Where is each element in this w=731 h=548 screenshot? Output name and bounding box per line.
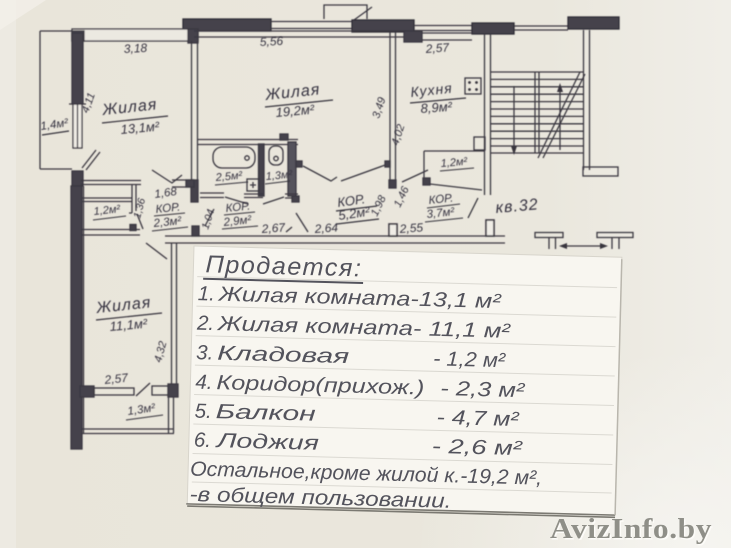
svg-text:4.: 4. <box>195 371 213 394</box>
svg-text:5.: 5. <box>194 400 212 423</box>
svg-text:2.: 2. <box>196 312 215 335</box>
svg-text:AvizInfo.by: AvizInfo.by <box>550 514 712 545</box>
svg-text:2,64: 2,64 <box>313 220 339 236</box>
svg-text:- 2,6 м²: - 2,6 м² <box>432 435 524 460</box>
svg-text:Кладовая: Кладовая <box>217 342 350 368</box>
svg-text:- 4,7 м²: - 4,7 м² <box>436 406 520 431</box>
svg-text:3.: 3. <box>196 341 214 364</box>
svg-text:- 2,3 м²: - 2,3 м² <box>440 377 526 402</box>
svg-text:2,57: 2,57 <box>424 40 451 56</box>
svg-text:Лоджия: Лоджия <box>214 429 319 455</box>
svg-text:2,57: 2,57 <box>103 370 130 387</box>
svg-text:2,55: 2,55 <box>398 220 424 236</box>
svg-text:2,67: 2,67 <box>260 220 287 236</box>
svg-text:1,2м²: 1,2м² <box>440 156 468 170</box>
svg-text:- 1,2 м²: - 1,2 м² <box>433 347 507 372</box>
svg-text:8,9м²: 8,9м² <box>420 99 453 116</box>
svg-text:1.: 1. <box>197 282 215 305</box>
svg-text:6.: 6. <box>194 429 212 452</box>
svg-text:3,18: 3,18 <box>123 41 147 56</box>
svg-text:2,5м²: 2,5м² <box>214 170 243 184</box>
svg-text:Балкон: Балкон <box>215 400 316 426</box>
svg-text:5,56: 5,56 <box>259 34 283 49</box>
svg-text:Продается:: Продается: <box>205 251 363 282</box>
